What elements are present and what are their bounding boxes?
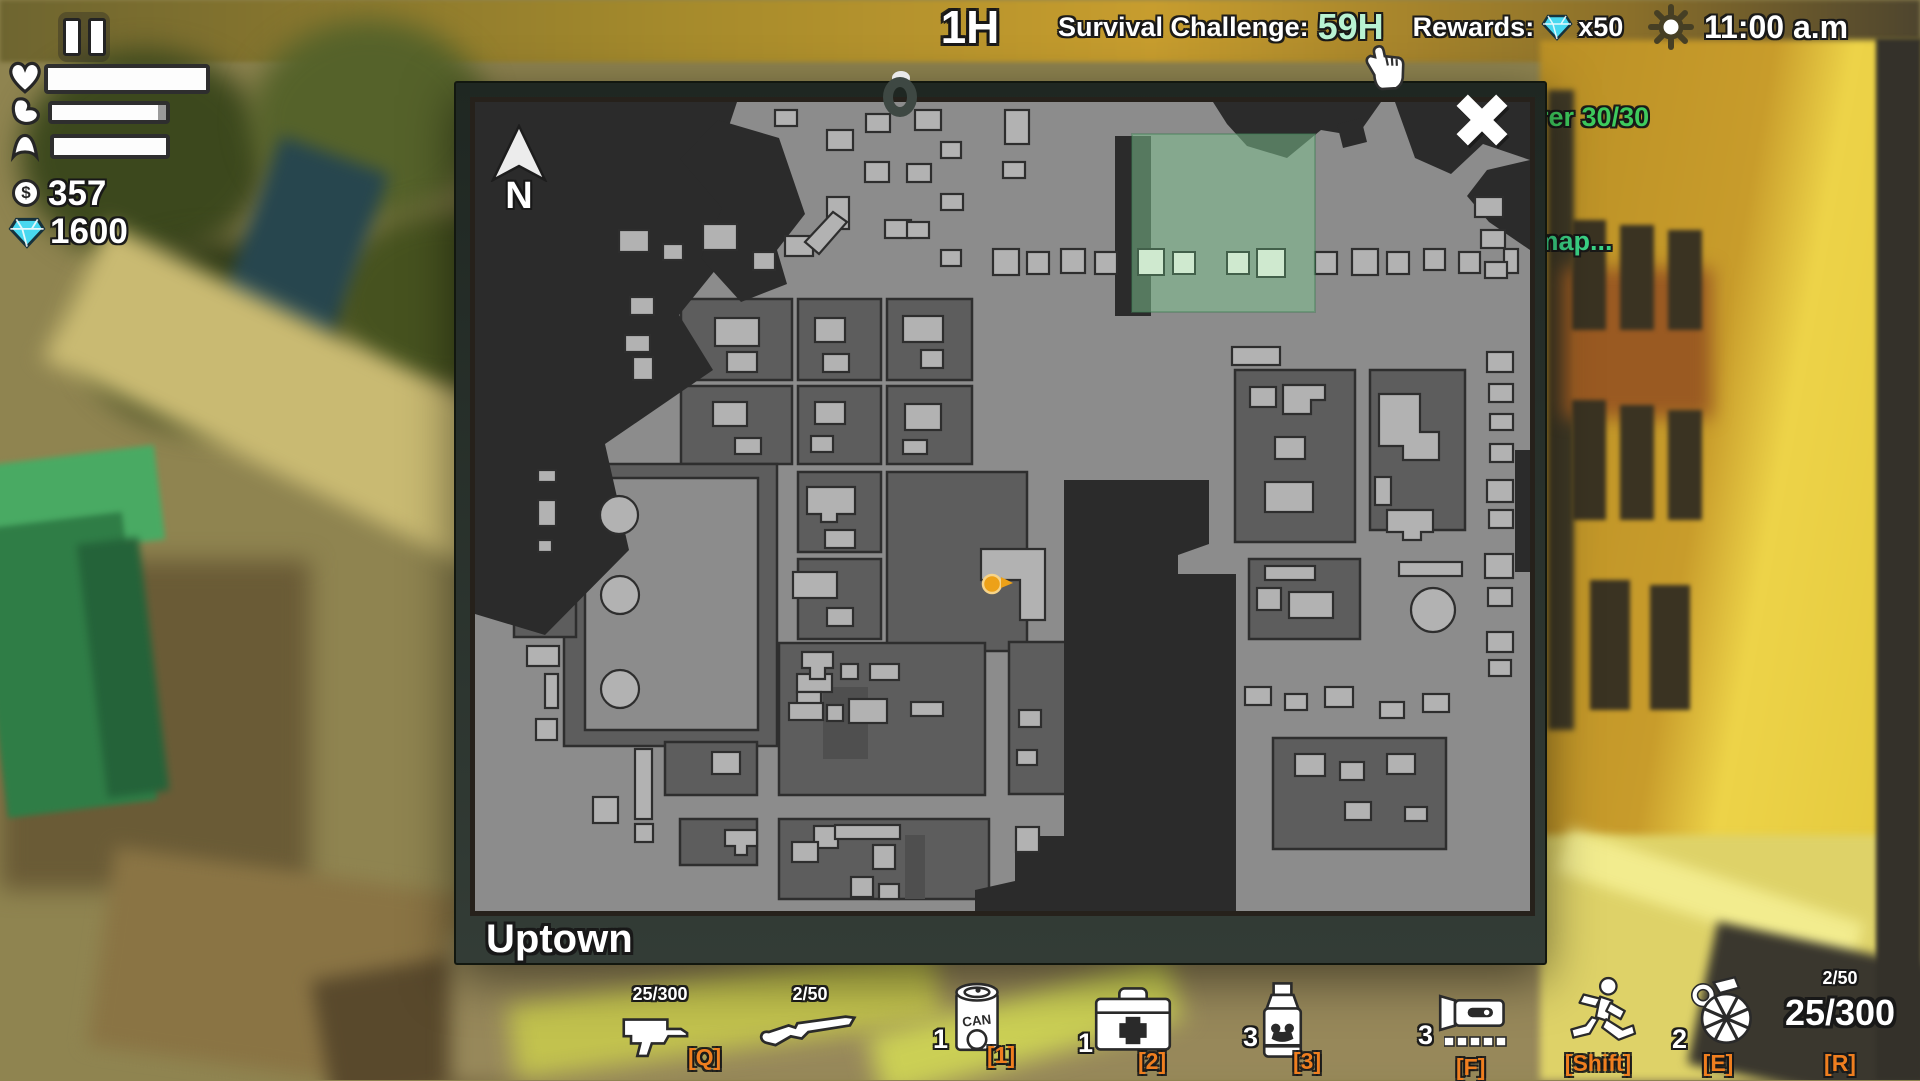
flashlight-count: 3 [1418,1020,1433,1051]
flashlight-key: [F] [1456,1054,1485,1081]
pause-icon [88,18,106,56]
smg-key: [Q] [688,1044,721,1071]
medkit-count: 1 [1078,1028,1093,1059]
battery-bar-icon [1444,1036,1508,1048]
medkit-icon [1092,986,1174,1054]
flashlight-icon [1436,991,1512,1035]
can-key: [1] [987,1042,1015,1069]
sprint-key: [Shift] [1548,1050,1648,1077]
current-ammo: 25/300 [1740,992,1920,1034]
hotbar-slot-sprint[interactable]: [Shift] [1548,974,1648,1076]
reserve-ammo: 2/50 [1740,968,1920,989]
shotgun-icon [758,1010,862,1054]
drink-key: [3] [1293,1048,1321,1075]
active-ammo-counter: 2/50 25/300 [R] [1740,966,1920,1076]
medkit-key: [2] [1138,1048,1166,1075]
hotbar-slot-canned-food[interactable]: 1 CAN [1] [925,980,1025,1072]
can-count: 1 [933,1024,948,1055]
shotgun-ammo: 2/50 [750,984,870,1005]
hotbar-slot-energy-drink[interactable]: 3 [3] [1235,980,1335,1076]
runner-icon [1554,976,1640,1048]
smg-icon [618,1004,696,1058]
hotbar-slot-smg[interactable]: 25/300 [Q] [596,984,724,1076]
can-label: CAN [962,1012,992,1030]
pause-icon [63,18,81,56]
hotbar-slot-flashlight[interactable]: 3 [F] [1410,988,1522,1080]
hotbar: 25/300 [Q] 2/50 1 CAN [1] 1 [0,0,1920,1080]
pointer-hand-icon [1358,38,1413,96]
pause-button[interactable] [58,12,110,62]
drink-count: 3 [1243,1022,1258,1053]
hotbar-slot-medkit[interactable]: 1 [2] [1070,982,1182,1076]
hotbar-slot-shotgun[interactable]: 2/50 [750,984,870,1064]
hand-cursor [1358,38,1413,96]
smg-ammo: 25/300 [596,984,724,1005]
reload-key: [R] [1740,1050,1920,1077]
